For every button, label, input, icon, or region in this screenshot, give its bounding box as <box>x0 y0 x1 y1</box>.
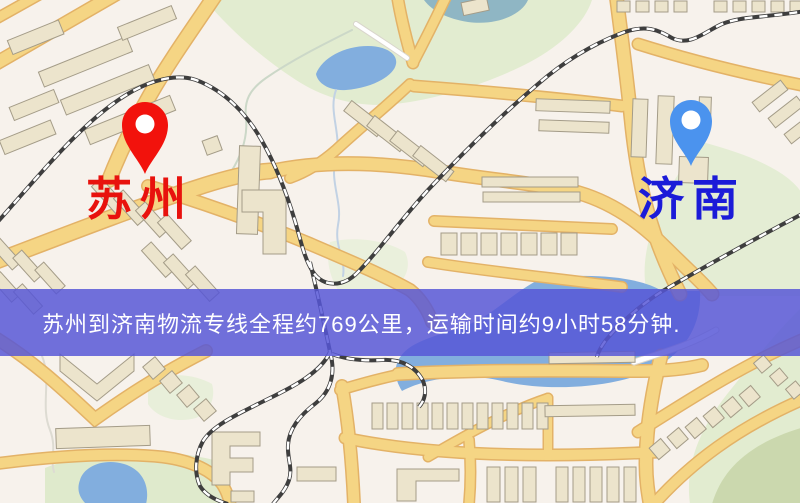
origin-city-label: 苏州 <box>86 176 194 222</box>
map-canvas[interactable]: 苏州 济南 苏州到济南物流专线全程约769公里，运输时间约9小时58分钟. <box>0 0 800 503</box>
map-background <box>0 0 800 503</box>
destination-city-label: 济南 <box>638 176 746 222</box>
red-pin-icon <box>118 100 172 176</box>
route-info-text: 苏州到济南物流专线全程约769公里，运输时间约9小时58分钟. <box>0 307 681 339</box>
origin-marker-pin[interactable] <box>118 100 172 176</box>
route-info-banner: 苏州到济南物流专线全程约769公里，运输时间约9小时58分钟. <box>0 289 800 356</box>
destination-marker-pin[interactable] <box>666 98 716 168</box>
blue-pin-icon <box>666 98 716 168</box>
